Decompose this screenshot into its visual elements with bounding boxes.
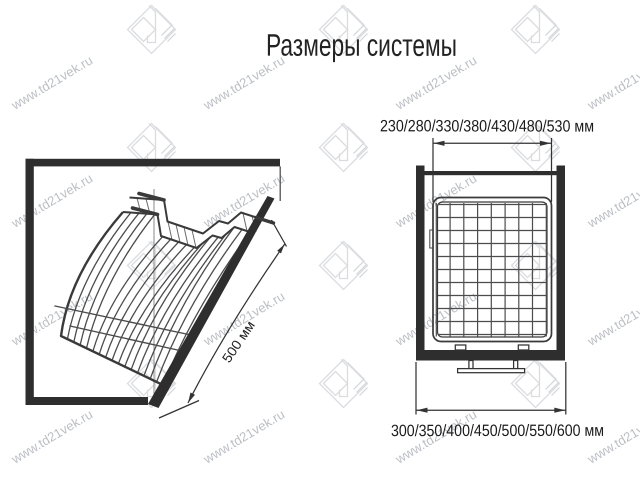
svg-text:300/350/400/450/500/550/600 мм: 300/350/400/450/500/550/600 мм <box>391 422 604 440</box>
svg-text:230/280/330/380/430/480/530 мм: 230/280/330/380/430/480/530 мм <box>380 117 594 135</box>
svg-text:Размеры системы: Размеры системы <box>266 28 457 63</box>
